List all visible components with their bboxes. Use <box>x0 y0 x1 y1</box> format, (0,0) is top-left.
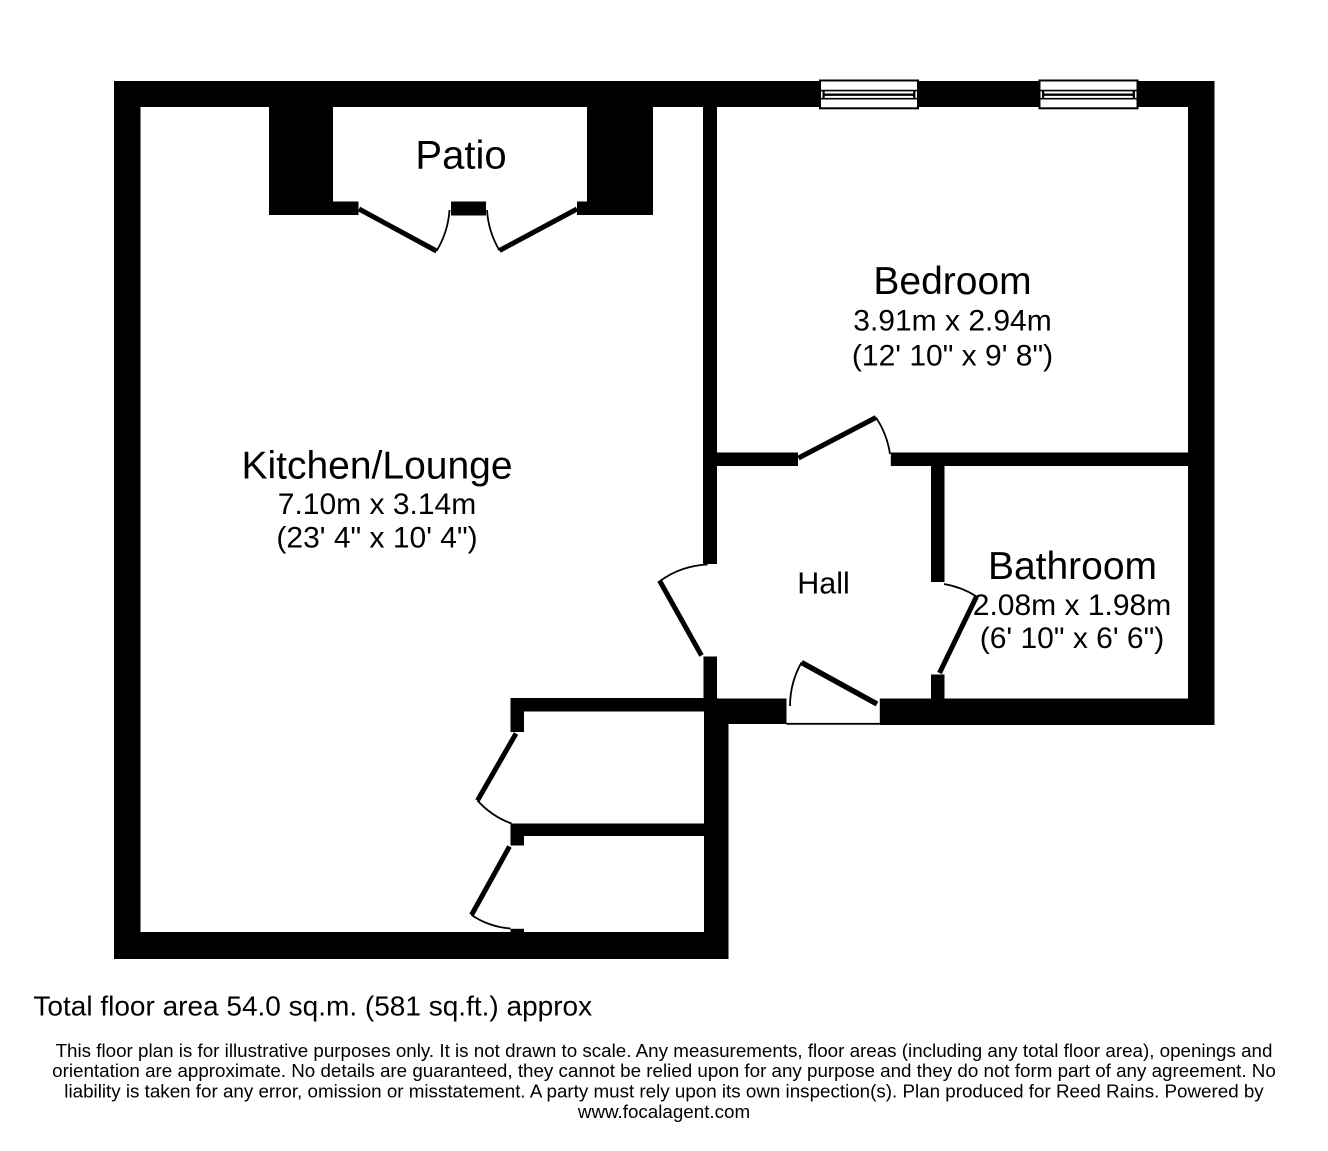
svg-text:2.08m x 1.98m: 2.08m x 1.98m <box>973 589 1171 622</box>
svg-text:orientation are approximate. N: orientation are approximate. No details … <box>52 1060 1276 1081</box>
svg-text:(23' 4" x 10' 4"): (23' 4" x 10' 4") <box>276 522 477 555</box>
svg-text:This floor plan is for illustr: This floor plan is for illustrative purp… <box>56 1040 1273 1061</box>
svg-text:(6' 10" x 6' 6"): (6' 10" x 6' 6") <box>980 622 1165 655</box>
svg-text:liability is taken for any err: liability is taken for any error, omissi… <box>64 1081 1264 1102</box>
svg-text:Bedroom: Bedroom <box>873 260 1031 303</box>
svg-text:Hall: Hall <box>797 566 850 600</box>
svg-text:www.focalagent.com: www.focalagent.com <box>577 1101 750 1122</box>
svg-text:Bathroom: Bathroom <box>988 545 1157 588</box>
svg-text:Total floor area 54.0 sq.m. (5: Total floor area 54.0 sq.m. (581 sq.ft.)… <box>33 991 592 1022</box>
svg-text:Patio: Patio <box>415 134 506 178</box>
svg-text:3.91m x 2.94m: 3.91m x 2.94m <box>853 305 1051 338</box>
svg-text:(12' 10" x 9' 8"): (12' 10" x 9' 8") <box>852 340 1053 373</box>
svg-text:Kitchen/Lounge: Kitchen/Lounge <box>241 445 512 488</box>
svg-text:7.10m x 3.14m: 7.10m x 3.14m <box>278 488 476 521</box>
